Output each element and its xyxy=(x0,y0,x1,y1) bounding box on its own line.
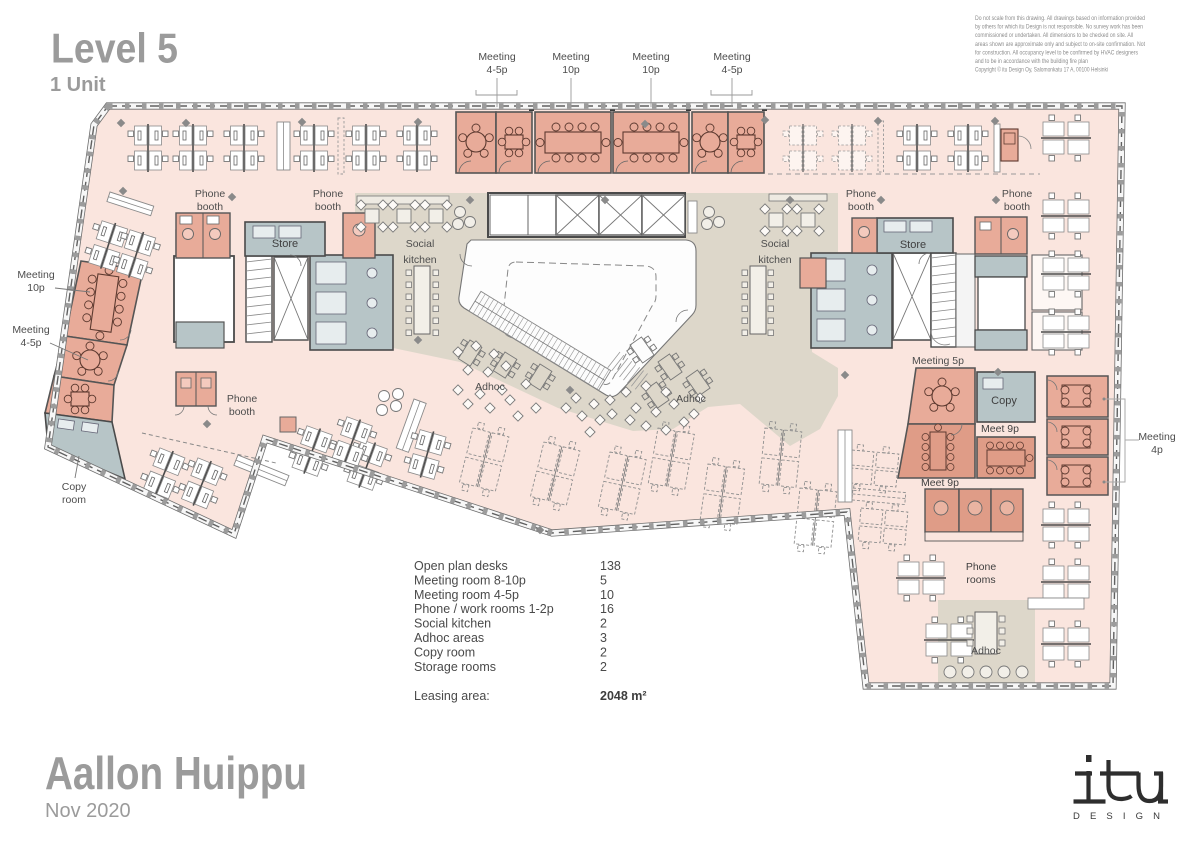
svg-text:5: 5 xyxy=(600,573,607,587)
svg-text:2048 m²: 2048 m² xyxy=(600,689,647,703)
svg-text:10: 10 xyxy=(600,588,614,602)
svg-text:Phone: Phone xyxy=(195,188,226,200)
svg-text:booth: booth xyxy=(315,201,341,213)
svg-text:16: 16 xyxy=(600,602,614,616)
svg-text:Aallon Huippu: Aallon Huippu xyxy=(45,747,307,799)
svg-text:4-5p: 4-5p xyxy=(20,337,41,349)
svg-text:Copy room: Copy room xyxy=(414,645,475,659)
svg-text:Meeting: Meeting xyxy=(552,51,590,63)
svg-text:room: room xyxy=(62,494,86,506)
svg-text:Phone: Phone xyxy=(227,393,258,405)
svg-text:Storage rooms: Storage rooms xyxy=(414,660,496,674)
svg-text:booth: booth xyxy=(1004,201,1030,213)
svg-text:Social: Social xyxy=(761,238,790,250)
svg-text:Adhoc: Adhoc xyxy=(475,381,505,393)
svg-text:10p: 10p xyxy=(642,64,660,76)
svg-text:4p: 4p xyxy=(1151,444,1163,456)
svg-text:Meet 9p: Meet 9p xyxy=(921,477,959,489)
svg-text:and to be in accordance with t: and to be in accordance with the buildin… xyxy=(975,58,1088,65)
svg-text:booth: booth xyxy=(229,406,255,418)
svg-text:Phone: Phone xyxy=(313,188,344,200)
svg-text:rooms: rooms xyxy=(966,574,995,586)
svg-text:Level 5: Level 5 xyxy=(51,25,178,72)
svg-text:Adhoc: Adhoc xyxy=(676,393,706,405)
svg-text:Phone / work rooms 1-2p: Phone / work rooms 1-2p xyxy=(414,602,554,616)
svg-text:commissioned or undertaken. Al: commissioned or undertaken. All dimensio… xyxy=(975,32,1133,39)
svg-text:Store: Store xyxy=(900,239,926,251)
svg-text:DESIGN: DESIGN xyxy=(1073,811,1168,822)
svg-text:3: 3 xyxy=(600,631,607,645)
svg-text:10p: 10p xyxy=(562,64,580,76)
svg-text:Copy: Copy xyxy=(62,481,87,493)
svg-text:1 Unit: 1 Unit xyxy=(50,74,106,96)
svg-text:booth: booth xyxy=(197,201,223,213)
svg-text:Meeting: Meeting xyxy=(713,51,751,63)
svg-text:Copyright © itu Design Oy, Sal: Copyright © itu Design Oy, Salomonkatu 1… xyxy=(975,67,1108,74)
svg-text:138: 138 xyxy=(600,559,621,573)
svg-text:Meeting: Meeting xyxy=(478,51,516,63)
svg-text:by others for which itu Design: by others for which itu Design is not re… xyxy=(975,24,1143,31)
svg-text:Social kitchen: Social kitchen xyxy=(414,617,491,631)
svg-text:2: 2 xyxy=(600,645,607,659)
svg-text:Social: Social xyxy=(406,238,435,250)
svg-text:2: 2 xyxy=(600,660,607,674)
svg-text:Meeting room 8-10p: Meeting room 8-10p xyxy=(414,573,526,587)
svg-text:kitchen: kitchen xyxy=(403,254,436,266)
svg-text:Meeting: Meeting xyxy=(632,51,670,63)
svg-text:Meet 9p: Meet 9p xyxy=(981,423,1019,435)
svg-text:Copy: Copy xyxy=(991,395,1017,407)
svg-text:2: 2 xyxy=(600,617,607,631)
svg-text:Do not scale from this drawing: Do not scale from this drawing. All draw… xyxy=(975,15,1145,22)
svg-text:Meeting: Meeting xyxy=(1138,431,1176,443)
svg-text:Meeting: Meeting xyxy=(17,269,55,281)
svg-text:kitchen: kitchen xyxy=(758,254,791,266)
svg-text:Meeting room 4-5p: Meeting room 4-5p xyxy=(414,588,519,602)
svg-text:Store: Store xyxy=(272,238,298,250)
svg-text:areas shown are approximate on: areas shown are approximate only and sub… xyxy=(975,41,1145,48)
svg-text:Open plan desks: Open plan desks xyxy=(414,559,508,573)
svg-text:Leasing area:: Leasing area: xyxy=(414,689,490,703)
svg-text:Adhoc areas: Adhoc areas xyxy=(414,631,484,645)
svg-text:booth: booth xyxy=(848,201,874,213)
svg-text:Phone: Phone xyxy=(846,188,877,200)
svg-text:4-5p: 4-5p xyxy=(721,64,742,76)
svg-text:Phone: Phone xyxy=(1002,188,1033,200)
svg-text:Meeting: Meeting xyxy=(12,324,50,336)
svg-text:10p: 10p xyxy=(27,282,45,294)
svg-text:Nov 2020: Nov 2020 xyxy=(45,800,131,822)
svg-text:for construction. All occupanc: for construction. All occupancy level to… xyxy=(975,49,1138,56)
svg-text:Meeting 5p: Meeting 5p xyxy=(912,355,964,367)
svg-text:4-5p: 4-5p xyxy=(486,64,507,76)
svg-text:Adhoc: Adhoc xyxy=(971,645,1001,657)
svg-text:Phone: Phone xyxy=(966,561,997,573)
